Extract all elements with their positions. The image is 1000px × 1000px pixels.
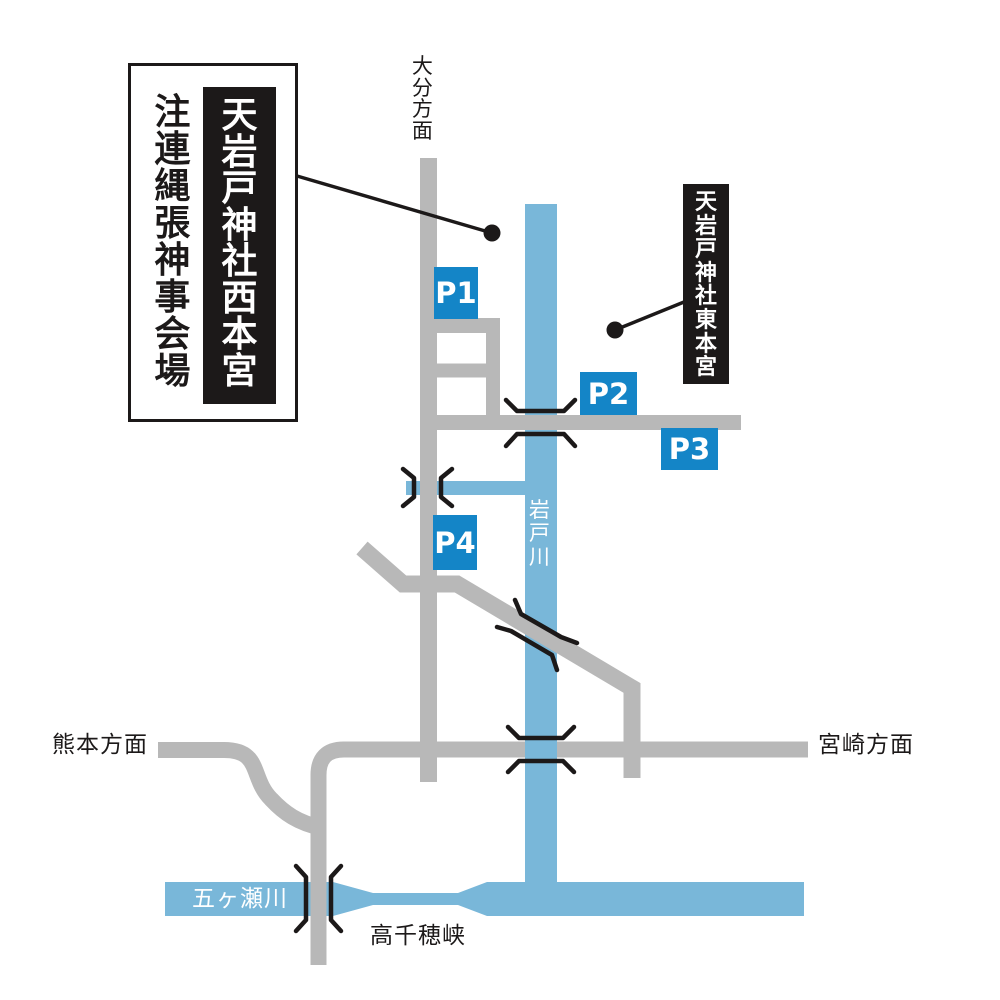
direction-label-oita: 大分方面 [411, 56, 434, 142]
venue-event-label: 注連縄張神事会場 [153, 94, 192, 390]
west-shrine-name: 天岩戸神社西本宮 [220, 98, 259, 404]
east-shrine-name-plate: 天岩戸神社東本宮 [683, 184, 729, 384]
east-shrine-name: 天岩戸神社東本宮 [694, 191, 718, 384]
east-shrine-location-dot [607, 322, 624, 339]
shrine-access-map: 注連縄張神事会場 天岩戸神社西本宮 天岩戸神社東本宮 P1 P2 P3 P4 大… [0, 0, 1000, 1000]
landmark-label-takachiho-gorge: 高千穂峡 [370, 916, 466, 950]
parking-badge-p2: P2 [580, 372, 637, 415]
road-kumamoto-branch [158, 750, 322, 828]
parking-badge-p1: P1 [434, 267, 478, 319]
west-shrine-location-dot [484, 225, 501, 242]
direction-label-kumamoto: 熊本方面 [52, 734, 148, 757]
river-label-iwato: 岩戸川 [528, 499, 551, 569]
west-shrine-leader-line [297, 176, 492, 233]
direction-label-miyazaki: 宮崎方面 [818, 734, 914, 757]
leader-lines [297, 176, 684, 339]
river-label-gokase: 五ヶ瀬川 [192, 888, 288, 911]
venue-callout-box: 注連縄張神事会場 天岩戸神社西本宮 [128, 63, 298, 422]
iwato-river-overpass [525, 735, 557, 882]
west-shrine-name-plate: 天岩戸神社西本宮 [203, 87, 276, 404]
parking-badge-p4: P4 [433, 515, 477, 570]
east-shrine-leader-line [615, 302, 684, 330]
parking-badge-p3: P3 [661, 428, 718, 470]
